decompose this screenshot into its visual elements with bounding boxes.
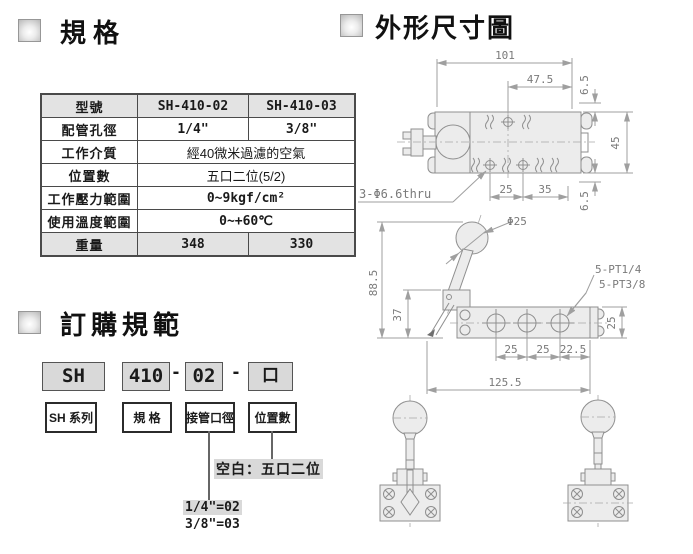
table-row-medium: 工作介質 經40微米過濾的空氣 <box>41 141 355 164</box>
dim-hole-edge: 35 <box>538 183 551 196</box>
dim-port-edge: 22.5 <box>560 343 587 356</box>
dim-port-pitch-2: 25 <box>536 343 549 356</box>
catalog-page: 規格 外形尺寸圖 訂購規範 型號 SH-410-02 SH-410-03 配管孔… <box>0 0 693 554</box>
positions-value: 五口二位(5/2) <box>138 164 356 187</box>
code-label-position: 位置數 <box>248 402 297 433</box>
section-bullet-icon <box>18 311 41 334</box>
spec-table: 型號 SH-410-02 SH-410-03 配管孔徑 1/4" 3/8" 工作… <box>40 93 356 257</box>
knob-circle <box>456 222 488 254</box>
pressure-label: 工作壓力範圍 <box>41 187 138 210</box>
port-size-label: 配管孔徑 <box>41 118 138 141</box>
temperature-label: 使用溫度範圍 <box>41 210 138 233</box>
port-note-three-eighths: 3/8"=03 <box>185 517 240 532</box>
dim-pivot-height: 37 <box>391 308 404 321</box>
side-view-right <box>563 395 633 527</box>
table-row-port-size: 配管孔徑 1/4" 3/8" <box>41 118 355 141</box>
front-view: Φ25 <box>367 215 645 394</box>
positions-label: 位置數 <box>41 164 138 187</box>
code-label-port: 接管口徑 <box>185 402 235 433</box>
dim-ear-top: 6.5 <box>578 75 591 95</box>
temperature-value: 0~+60℃ <box>138 210 356 233</box>
dim-hole-pitch: 25 <box>499 183 512 196</box>
port-thread-label-b: 5-PT3/8 <box>599 278 645 291</box>
thru-hole-label: 3-Φ6.6thru <box>359 187 431 201</box>
specs-heading: 規格 <box>60 13 126 50</box>
dim-overall-width: 101 <box>495 49 515 62</box>
port-connector-line <box>208 431 210 503</box>
knob-diameter-label: Φ25 <box>507 215 527 228</box>
code-box-position: 口 <box>248 362 293 391</box>
dim-overall-length: 125.5 <box>488 376 521 389</box>
model-label: 型號 <box>41 94 138 118</box>
outline-dimension-drawing: 101 47.5 6.5 45 6.5 25 35 3-Φ6.6thru Φ25 <box>355 45 693 554</box>
dim-port-pitch-1: 25 <box>504 343 517 356</box>
dim-body-height: 45 <box>609 136 622 149</box>
weight-b: 330 <box>249 233 356 257</box>
table-row-pressure: 工作壓力範圍 0~9kgf/cm² <box>41 187 355 210</box>
dim-body-depth: 25 <box>605 316 618 329</box>
dim-total-height: 88.5 <box>367 270 380 297</box>
table-row-model: 型號 SH-410-02 SH-410-03 <box>41 94 355 118</box>
position-note: 空白：五口二位 <box>214 459 323 479</box>
weight-label: 重量 <box>41 233 138 257</box>
weight-a: 348 <box>138 233 249 257</box>
code-separator: - <box>230 361 242 384</box>
medium-value: 經40微米過濾的空氣 <box>138 141 356 164</box>
port-size-b: 3/8" <box>249 118 356 141</box>
code-label-size: 規 格 <box>122 402 172 433</box>
section-bullet-icon <box>340 14 363 37</box>
medium-label: 工作介質 <box>41 141 138 164</box>
dimensions-heading: 外形尺寸圖 <box>375 8 515 45</box>
table-row-weight: 重量 348 330 <box>41 233 355 257</box>
dim-ear-bottom: 6.5 <box>578 191 591 211</box>
lever-clevis <box>403 129 436 156</box>
side-view-left <box>380 395 440 527</box>
model-b: SH-410-03 <box>249 94 356 118</box>
pressure-value: 0~9kgf/cm² <box>138 187 356 210</box>
table-row-temperature: 使用溫度範圍 0~+60℃ <box>41 210 355 233</box>
dim-half-width: 47.5 <box>527 73 554 86</box>
code-box-port: 02 <box>185 362 223 391</box>
position-connector-line <box>271 431 273 461</box>
ordering-heading: 訂購規範 <box>60 305 184 342</box>
code-label-series: SH 系列 <box>45 402 97 433</box>
top-view: 101 47.5 6.5 45 6.5 25 35 3-Φ6.6thru <box>358 49 633 211</box>
table-row-positions: 位置數 五口二位(5/2) <box>41 164 355 187</box>
port-note-quarter: 1/4"=02 <box>183 500 242 515</box>
port-thread-label-a: 5-PT1/4 <box>595 263 642 276</box>
code-separator: - <box>170 361 182 384</box>
port-size-a: 1/4" <box>138 118 249 141</box>
code-box-size: 410 <box>122 362 170 391</box>
section-bullet-icon <box>18 19 41 42</box>
model-a: SH-410-02 <box>138 94 249 118</box>
code-box-series: SH <box>42 362 105 391</box>
